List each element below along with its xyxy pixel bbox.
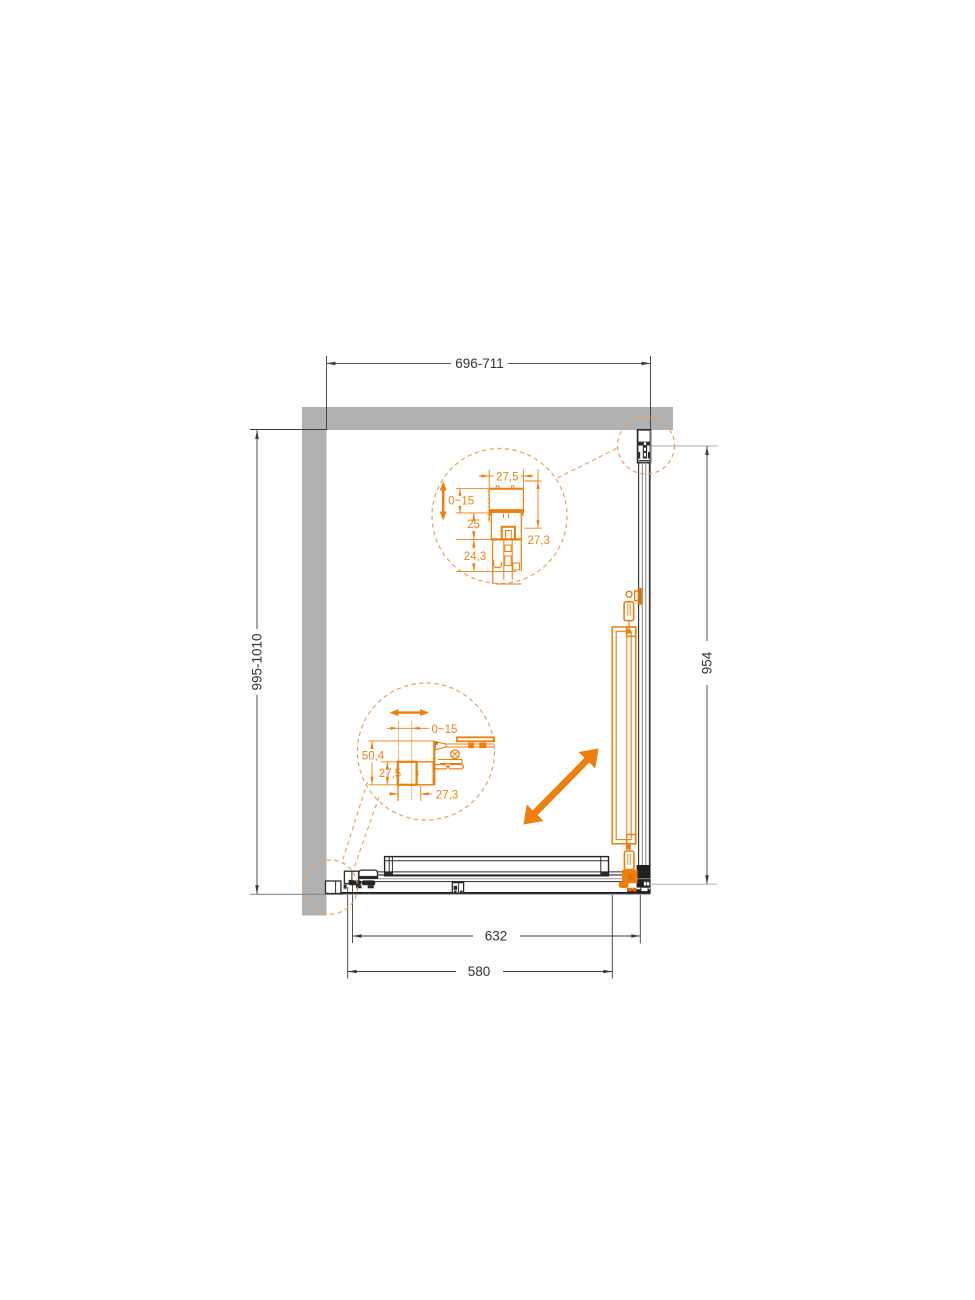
svg-text:632: 632 <box>485 929 508 944</box>
svg-text:696-711: 696-711 <box>455 356 504 371</box>
svg-text:25: 25 <box>467 519 480 531</box>
svg-text:580: 580 <box>468 964 491 979</box>
svg-text:27,3: 27,3 <box>436 790 458 802</box>
svg-text:0~15: 0~15 <box>448 496 474 508</box>
svg-text:954: 954 <box>700 651 715 674</box>
svg-text:27,5: 27,5 <box>496 471 518 483</box>
svg-text:27,3: 27,3 <box>528 535 550 547</box>
svg-text:0~15: 0~15 <box>432 724 458 736</box>
svg-text:995-1010: 995-1010 <box>250 633 265 690</box>
svg-text:24,3: 24,3 <box>464 551 486 563</box>
svg-text:50,4: 50,4 <box>362 751 385 763</box>
